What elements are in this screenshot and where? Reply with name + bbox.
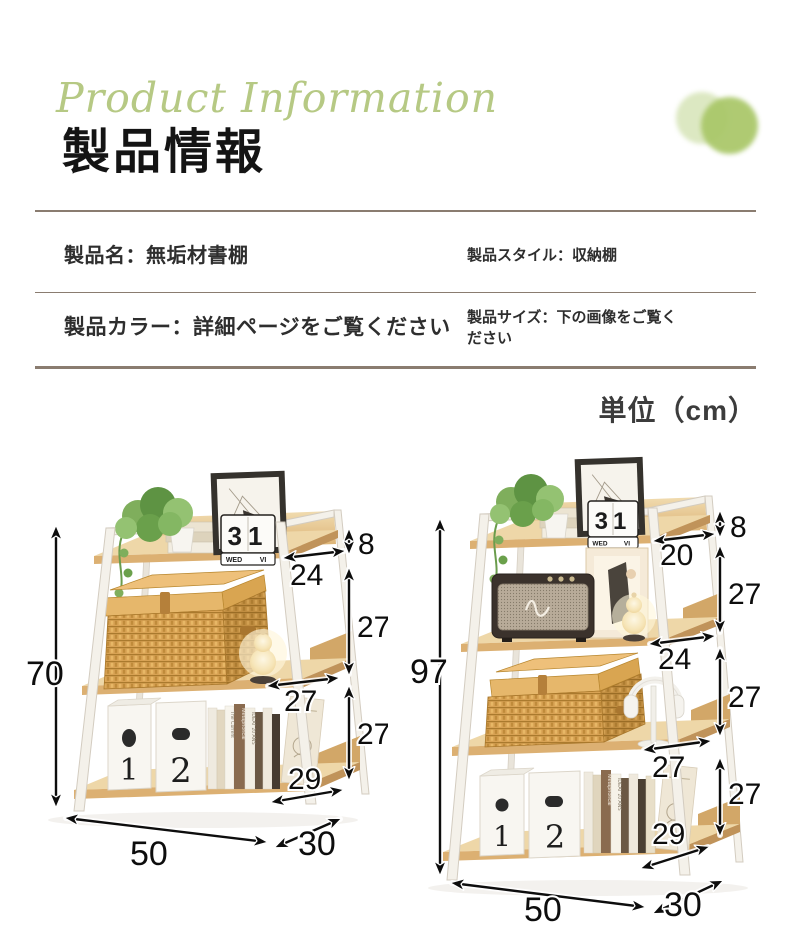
left-shelf-diagram: 31 WED VI 1 (18, 458, 388, 878)
file-box-1-number: 1 (493, 820, 511, 853)
calendar-weekday: WED (592, 541, 607, 548)
dim-label-width: 50 (524, 891, 562, 925)
calendar-day: 31 (595, 508, 632, 535)
book-spine-text: Metaphorical (606, 774, 612, 806)
dim-label-depth: 30 (664, 886, 702, 924)
wicker-basket (104, 570, 270, 689)
file-box-2-number: 2 (545, 818, 565, 856)
book-spine-text: Metaphorical (240, 708, 246, 740)
book-row: The Current Metaphorical IDEAT 20 ANS (208, 704, 280, 789)
dim-label-width: 50 (130, 835, 168, 873)
file-box-1-number: 1 (119, 753, 138, 788)
product-style-cell: 製品スタイル：収納棚 (467, 244, 617, 265)
dim-label-tier4: 27 (728, 778, 761, 811)
file-box-2: 2 (156, 701, 206, 792)
dim-label-tier3: 27 (357, 718, 388, 751)
wicker-basket (485, 653, 645, 747)
right-shelf-diagram: 31 WED VI (398, 448, 788, 925)
calendar-day: 31 (228, 521, 269, 551)
dim-label-top-gap: 8 (730, 511, 747, 544)
divider-middle (35, 292, 756, 293)
dim-label-top-depth: 20 (660, 539, 693, 572)
divider-bottom (35, 366, 756, 369)
dim-label-bottom-depth: 29 (288, 763, 321, 796)
product-name-cell: 製品名：無垢材書棚 (64, 239, 249, 268)
dim-label-height: 70 (26, 655, 64, 693)
calendar-month: VI (624, 541, 630, 548)
dim-label-shelf3-depth: 27 (652, 751, 685, 784)
file-box-2: 2 (529, 771, 580, 858)
book-spine-text: IDEAT 20 ANS (616, 778, 622, 811)
product-size-cell: 製品サイズ：下の画像をご覧ください (467, 307, 681, 349)
dim-label-bottom-depth: 29 (652, 818, 685, 851)
basket-strap (538, 675, 547, 695)
flip-calendar: 31 WED VI (588, 501, 638, 548)
basket-strap (160, 592, 170, 614)
decor-circle-dark (701, 97, 758, 154)
file-box-2-number: 2 (170, 751, 192, 791)
unit-label: 単位（cm） (599, 389, 757, 429)
dim-label-top-gap: 8 (358, 528, 375, 561)
book-spine-text: The Current (229, 711, 235, 738)
dim-label-tier2: 27 (728, 578, 761, 611)
calendar-weekday: WED (226, 557, 242, 564)
book-spine-text: IDEAT 20 ANS (250, 712, 256, 745)
calendar-month: VI (260, 557, 267, 564)
dim-label-tier3: 27 (728, 681, 761, 714)
dim-label-mid-depth: 27 (284, 685, 317, 718)
product-color-cell: 製品カラー：詳細ページをご覧ください (64, 311, 451, 341)
dim-label-shelf2-depth: 24 (658, 643, 691, 676)
flip-calendar: 31 WED VI (221, 515, 275, 565)
speaker (492, 574, 594, 642)
book-row: Metaphorical IDEAT 20 ANS (584, 770, 655, 853)
dim-label-top-depth: 24 (290, 559, 323, 592)
dim-label-tier2: 27 (357, 611, 388, 644)
dim-label-depth: 30 (298, 825, 336, 863)
dim-label-height: 97 (410, 653, 448, 691)
divider-top (35, 210, 756, 212)
page-title: 製品情報 (62, 112, 266, 182)
right-shelf-photo: 31 WED VI (428, 457, 748, 896)
